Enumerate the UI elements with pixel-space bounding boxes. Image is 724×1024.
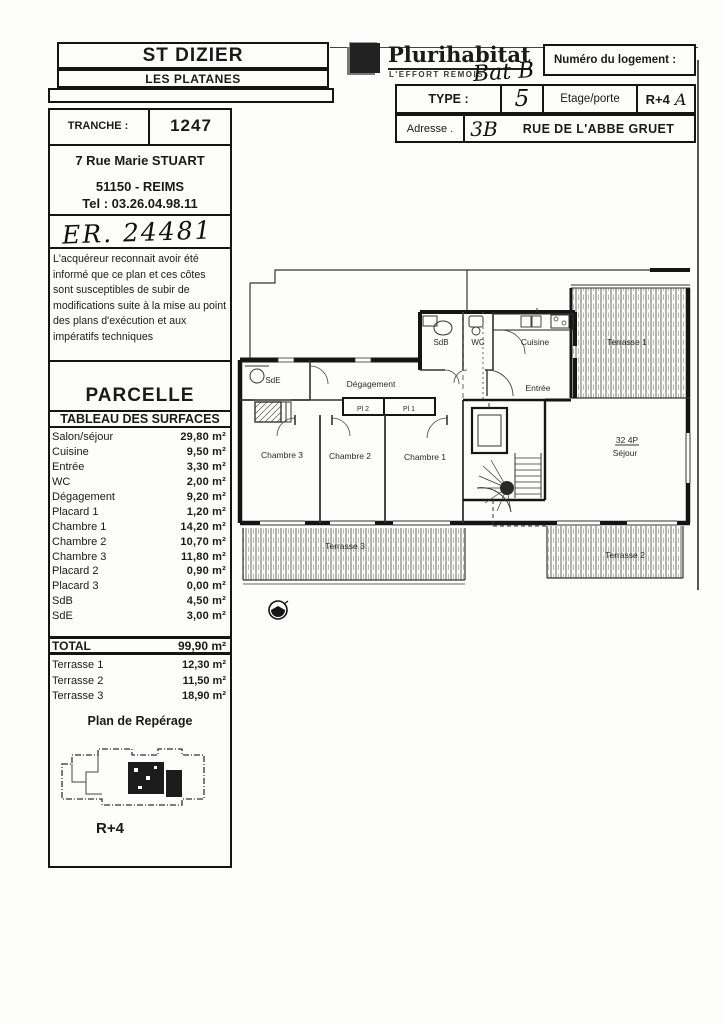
site-title: ST DIZIER xyxy=(143,45,244,67)
table-row: SdB4,50 m² xyxy=(48,594,232,609)
table-row: Placard 20,90 m² xyxy=(48,564,232,579)
row-value: 29,80 m² xyxy=(180,431,226,443)
row-label: Terrasse 2 xyxy=(52,675,103,687)
tranche-value: 1247 xyxy=(170,116,212,136)
north-symbol-icon xyxy=(269,601,288,619)
row-label: Entrée xyxy=(52,461,84,473)
unit-number-label: 32 4P xyxy=(616,435,639,445)
brand-tagline-text: L'EFFORT REMOIS xyxy=(389,70,484,79)
room-label-terrasse2: Terrasse 2 xyxy=(605,550,645,560)
row-value: 12,30 m² xyxy=(182,659,226,671)
room-label-entree: Entrée xyxy=(525,383,550,393)
row-value: 9,20 m² xyxy=(187,491,226,503)
pocket-door-gap xyxy=(278,356,294,364)
kitchen-sink-right xyxy=(532,316,541,327)
surfaces-table-title: TABLEAU DES SURFACES xyxy=(48,410,232,428)
window xyxy=(260,518,305,528)
adresse-number-cell: 3B xyxy=(465,116,503,141)
row-value: 14,20 m² xyxy=(180,521,226,533)
sde-door-arc xyxy=(310,366,328,384)
adresse-row: Adresse . 3B RUE DE L'ABBE GRUET xyxy=(395,114,696,143)
blob-texture-dot xyxy=(134,768,138,772)
row-value: 4,50 m² xyxy=(187,595,226,607)
chambre2-door-arc xyxy=(332,418,350,436)
type-value-handwritten: 5 xyxy=(515,86,530,112)
room-label-pl2: Pl 2 xyxy=(357,406,369,413)
table-row: Terrasse 112,30 m² xyxy=(48,657,232,673)
row-value: 0,90 m² xyxy=(187,565,226,577)
total-value: 99,90 m² xyxy=(178,639,226,653)
tranche-label-cell: TRANCHE : xyxy=(48,108,150,144)
blob-texture-dot xyxy=(154,766,157,769)
adresse-label-cell: Adresse . xyxy=(397,116,465,141)
east-window xyxy=(683,433,693,483)
row-value: 0,00 m² xyxy=(187,580,226,592)
row-label: Chambre 3 xyxy=(52,551,106,563)
row-label: Chambre 1 xyxy=(52,521,106,533)
wc-door-arc xyxy=(454,370,467,383)
handwritten-ref: ER. 24481 xyxy=(62,215,213,249)
table-row: SdE3,00 m² xyxy=(48,609,232,624)
parcelle-title: PARCELLE xyxy=(48,384,232,408)
building-inner-lines xyxy=(72,755,102,794)
empty-strip-box xyxy=(48,88,334,103)
brand-tagline: L'EFFORT REMOIS xyxy=(389,70,484,79)
room-label-sejour: Séjour xyxy=(613,448,638,458)
stair-treads xyxy=(515,458,541,494)
pocket-door-gap xyxy=(355,356,371,364)
reperage-mini-plan xyxy=(58,742,218,820)
blob-texture-dot xyxy=(146,776,150,780)
floorplan-drawing: SdB WC Cuisine Terrasse 1 Entrée Dégagem… xyxy=(235,248,700,628)
room-label-terrasse1: Terrasse 1 xyxy=(607,337,647,347)
room-label-terrasse3: Terrasse 3 xyxy=(325,541,365,551)
row-value: 10,70 m² xyxy=(180,536,226,548)
row-value: 3,00 m² xyxy=(187,610,226,622)
table-row: Entrée3,30 m² xyxy=(48,460,232,475)
office-address-line1: 7 Rue Marie STUART xyxy=(48,153,232,168)
type-row: TYPE : 5 Etage/porte R+4 A xyxy=(395,84,696,114)
table-row: Chambre 311,80 m² xyxy=(48,549,232,564)
total-row: TOTAL 99,90 m² xyxy=(48,636,232,655)
room-label-wc: WC xyxy=(471,338,485,347)
sde-washbasin xyxy=(250,369,264,383)
row-label: Salon/séjour xyxy=(52,431,113,443)
site-subtitle-box: LES PLATANES xyxy=(57,69,329,88)
type-value-cell: 5 xyxy=(502,86,544,112)
terrasses-table: Terrasse 112,30 m² Terrasse 211,50 m² Te… xyxy=(48,657,232,704)
adresse-value: RUE DE L'ABBE GRUET xyxy=(523,122,675,136)
etage-value: R+4 xyxy=(646,92,670,107)
etage-label-cell: Etage/porte xyxy=(544,86,638,112)
surfaces-table-title-text: TABLEAU DES SURFACES xyxy=(60,412,220,426)
chambre1-door-arc xyxy=(427,418,447,438)
room-label-chambre1: Chambre 1 xyxy=(404,452,446,462)
disclaimer-box: L'acquéreur reconnait avoir été informé … xyxy=(48,247,232,362)
surfaces-table: Salon/séjour29,80 m² Cuisine9,50 m² Entr… xyxy=(48,430,232,624)
table-row: Terrasse 211,50 m² xyxy=(48,673,232,689)
elevator-cab xyxy=(478,415,501,446)
reperage-level-text: R+4 xyxy=(96,820,124,837)
handwritten-ref-text: ER. 24481 xyxy=(62,215,213,249)
handwritten-building: Bat B xyxy=(472,58,535,87)
type-label-cell: TYPE : xyxy=(397,86,502,112)
row-label: Dégagement xyxy=(52,491,115,503)
sdb-door-arc xyxy=(445,370,459,384)
stair-rails xyxy=(515,453,541,498)
roof-terrace-top-edge xyxy=(250,270,467,283)
room-label-degagement: Dégagement xyxy=(347,379,396,389)
blob-texture-dot xyxy=(138,786,142,789)
parcelle-title-text: PARCELLE xyxy=(86,385,195,407)
kitchen-stove xyxy=(551,315,569,328)
row-label: Cuisine xyxy=(52,446,89,458)
table-row: Chambre 210,70 m² xyxy=(48,534,232,549)
row-value: 11,50 m² xyxy=(183,675,226,687)
total-label: TOTAL xyxy=(52,639,91,653)
plurihabitat-logo-icon xyxy=(350,43,380,73)
stove-burner xyxy=(554,317,558,321)
row-label: Terrasse 1 xyxy=(52,659,103,671)
window xyxy=(393,518,450,528)
table-row: Placard 11,20 m² xyxy=(48,504,232,519)
handwritten-building-text: Bat B xyxy=(472,58,535,87)
room-label-sde: SdE xyxy=(265,376,280,385)
duct-gaine xyxy=(255,402,281,422)
type-label: TYPE : xyxy=(428,92,468,106)
table-row: WC2,00 m² xyxy=(48,475,232,490)
numero-logement-box: Numéro du logement : xyxy=(543,44,696,76)
entree-door-arc xyxy=(487,370,513,396)
adresse-number-handwritten: 3B xyxy=(470,117,497,141)
stove-burner xyxy=(562,321,566,325)
unit-highlight-blob2 xyxy=(166,770,182,797)
room-label-sdb: SdB xyxy=(433,338,448,347)
row-value: 2,00 m² xyxy=(187,476,226,488)
office-address-box: 7 Rue Marie STUART 51150 - REIMS Tel : 0… xyxy=(48,146,232,216)
table-row: Chambre 114,20 m² xyxy=(48,519,232,534)
row-value: 9,50 m² xyxy=(187,446,226,458)
room-label-cuisine: Cuisine xyxy=(521,337,550,347)
tranche-box: TRANCHE : 1247 xyxy=(48,108,232,146)
row-value: 11,80 m² xyxy=(181,551,226,563)
row-value: 18,90 m² xyxy=(182,690,226,702)
office-address-line2: 51150 - REIMS xyxy=(48,179,232,194)
table-row: Terrasse 318,90 m² xyxy=(48,689,232,705)
wc-toilet-bowl xyxy=(472,327,480,335)
row-value: 3,30 m² xyxy=(187,461,226,473)
terrasse1-railing xyxy=(571,285,690,288)
wc-toilet xyxy=(469,316,483,327)
reperage-title-text: Plan de Repérage xyxy=(88,714,193,728)
row-label: WC xyxy=(52,476,70,488)
window xyxy=(330,518,375,528)
row-value: 1,20 m² xyxy=(187,506,226,518)
row-label: Chambre 2 xyxy=(52,536,106,548)
row-label: Terrasse 3 xyxy=(52,690,103,702)
etage-porte-label: Etage/porte xyxy=(560,93,619,105)
room-label-chambre3: Chambre 3 xyxy=(261,450,303,460)
tranche-label: TRANCHE : xyxy=(68,120,129,132)
reperage-level: R+4 xyxy=(96,820,124,837)
row-label: SdE xyxy=(52,610,73,622)
spiral-stair xyxy=(477,460,514,512)
site-title-box: ST DIZIER xyxy=(57,42,329,69)
table-row: Salon/séjour29,80 m² xyxy=(48,430,232,445)
adresse-value-cell: RUE DE L'ABBE GRUET xyxy=(503,116,694,141)
room-label-chambre2: Chambre 2 xyxy=(329,451,371,461)
etage-value-cell: R+4 A xyxy=(638,86,694,112)
tranche-value-cell: 1247 xyxy=(150,108,232,144)
kitchen-sink-left xyxy=(521,316,531,327)
porte-value-handwritten: A xyxy=(675,90,687,109)
office-phone: Tel : 03.26.04.98.11 xyxy=(48,196,232,211)
adresse-label: Adresse . xyxy=(407,123,453,135)
numero-logement-label: Numéro du logement : xyxy=(554,54,676,66)
row-label: Placard 2 xyxy=(52,565,98,577)
reperage-title: Plan de Repérage xyxy=(48,712,232,730)
table-row: Dégagement9,20 m² xyxy=(48,490,232,505)
table-row: Placard 30,00 m² xyxy=(48,579,232,594)
room-label-pl1: Pl 1 xyxy=(403,406,415,413)
row-label: Placard 1 xyxy=(52,506,98,518)
disclaimer-text: L'acquéreur reconnait avoir été informé … xyxy=(53,253,226,343)
row-label: Placard 3 xyxy=(52,580,98,592)
scanned-floorplan-document: ST DIZIER LES PLATANES Plurihabitat L'EF… xyxy=(0,0,724,1024)
site-subtitle: LES PLATANES xyxy=(145,72,241,86)
row-label: SdB xyxy=(52,595,73,607)
door-leaves xyxy=(295,415,447,425)
table-row: Cuisine9,50 m² xyxy=(48,445,232,460)
terrasse3-hatch xyxy=(243,528,465,580)
